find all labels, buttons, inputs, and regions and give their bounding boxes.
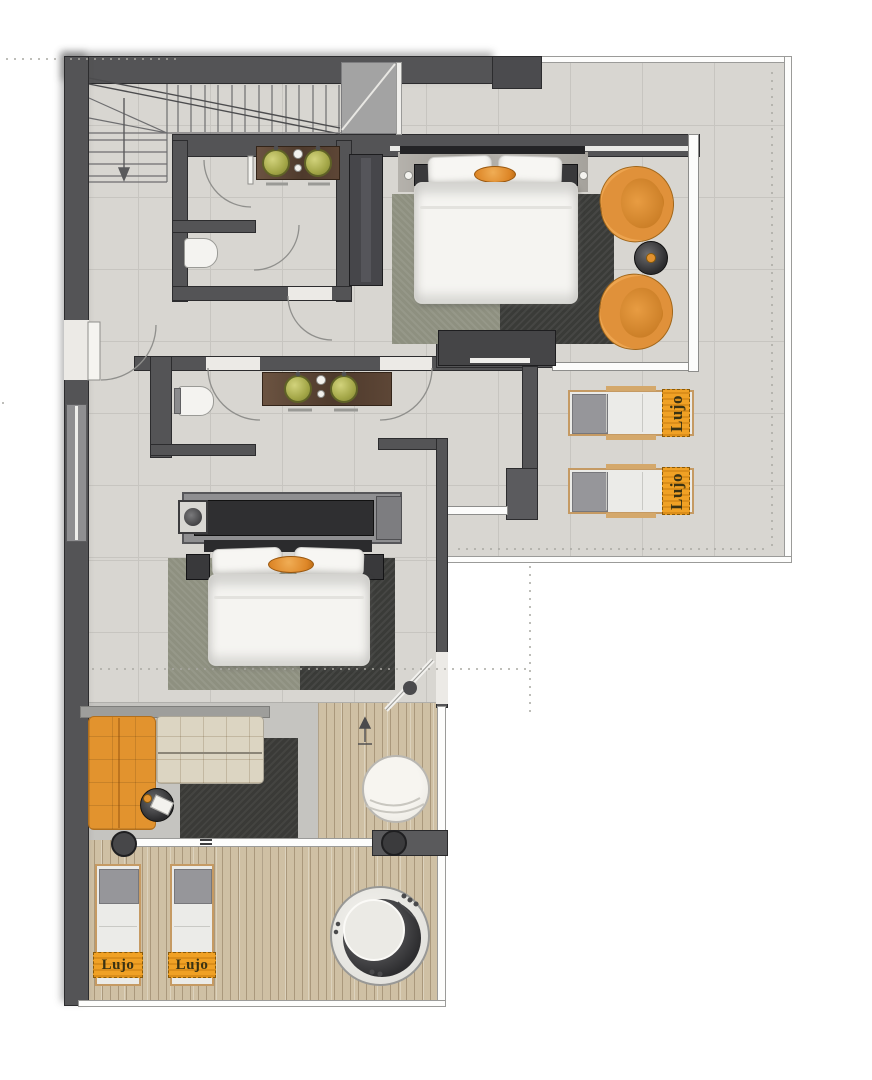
lamp-master-right <box>579 171 588 180</box>
terrace-parapet-bottom <box>446 556 792 563</box>
wall-bath1-wc-partition <box>172 220 256 233</box>
lounger-arm-bottom <box>606 435 656 440</box>
towel-label: Lujo <box>668 395 685 432</box>
towel-label: Lujo <box>102 958 135 973</box>
lounger-seam <box>174 926 210 927</box>
sun-lounger-terrace-2: Lujo <box>568 468 694 514</box>
duvet-fold-master <box>420 206 572 209</box>
lounger-seam <box>642 472 643 510</box>
lounger-seam <box>606 394 607 432</box>
sofa-beige-seam <box>158 752 262 754</box>
accessory-bath1 <box>294 164 302 172</box>
glass-master-east <box>688 134 699 372</box>
duvet-fold-bedroom2 <box>214 596 364 599</box>
toilet-bath2 <box>178 386 214 416</box>
terrace-parapet-right <box>784 56 792 563</box>
deck-rail-bottom <box>78 1000 446 1007</box>
nightstand-bedroom2-left <box>186 554 210 580</box>
terrace-parapet-top <box>540 56 792 63</box>
accent-pillow-bedroom2 <box>268 556 314 573</box>
lounger-seam <box>99 926 137 927</box>
vanity-bath2 <box>262 372 392 406</box>
sink-bath2-right <box>330 375 358 403</box>
sofa-chaise-seam <box>118 718 120 828</box>
towel-terrace-2: Lujo <box>662 467 690 515</box>
door-opening-bath2 <box>206 357 260 370</box>
accessory-bath2 <box>317 390 325 398</box>
towel-label: Lujo <box>668 473 685 510</box>
lounger-seam <box>606 472 607 510</box>
lounger-arm-bottom <box>606 513 656 518</box>
lounger-arm-top <box>606 464 656 469</box>
floor-transition-line <box>78 702 446 703</box>
lounger-headrest <box>99 869 139 904</box>
towel-label: Lujo <box>176 958 209 973</box>
pillar <box>506 468 538 520</box>
wall-terrace-side <box>522 366 538 470</box>
wardrobe-master-door-line <box>361 158 371 282</box>
tv-cabinet-detail <box>470 358 530 363</box>
lounger-seam <box>642 394 643 432</box>
accent-pillow-master <box>474 166 516 183</box>
door-opening-bath1 <box>288 287 332 300</box>
towel-deck-2: Lujo <box>168 952 216 978</box>
toilet-bath1 <box>184 238 218 268</box>
side-table-decor <box>646 253 656 263</box>
towel-deck-1: Lujo <box>93 952 143 978</box>
armchair-2-seat <box>617 285 665 341</box>
sofa-beige <box>156 716 264 784</box>
headboard-bar-master <box>400 146 585 154</box>
soap-dish-bath1 <box>293 149 303 159</box>
stair-divider <box>396 62 402 135</box>
sun-lounger-deck-1: Lujo <box>95 864 141 986</box>
sink-bath1-right <box>304 149 332 177</box>
glass-master-south <box>552 362 690 371</box>
planter-round <box>111 831 137 857</box>
wall-bath2-partition <box>150 444 256 456</box>
lamp-master-left <box>404 171 413 180</box>
wall-top-pillar <box>492 56 542 89</box>
door-opening-deck <box>436 652 448 704</box>
lounger-headrest <box>572 472 608 512</box>
towel-terrace-1: Lujo <box>662 389 690 437</box>
lounger-headrest <box>572 394 608 434</box>
bed-master-duvet <box>414 182 578 304</box>
lounger-headrest <box>174 869 212 904</box>
speaker-cone <box>184 508 202 526</box>
planter-box-pot <box>381 830 407 856</box>
door-opening-left-wall <box>64 320 89 380</box>
lounger-arm-top <box>606 386 656 391</box>
soap-dish-bath2 <box>316 375 326 385</box>
bed-bedroom2-duvet <box>208 574 370 666</box>
wall-bath2-left <box>150 356 172 458</box>
sink-bath2-left <box>284 375 312 403</box>
sun-lounger-deck-2: Lujo <box>170 864 214 986</box>
sink-bath1-left <box>262 149 290 177</box>
floor-plan: Lujo Lujo Lujo <box>0 0 872 1080</box>
armchair-1-seat <box>618 175 666 231</box>
stair-landing <box>341 62 397 134</box>
sun-lounger-terrace-1: Lujo <box>568 390 694 436</box>
glass-bedroom2-east <box>446 506 508 515</box>
window-left-glazing <box>75 406 78 540</box>
door-opening-bedroom2 <box>380 357 432 370</box>
headboard-cabinet-inner <box>194 500 374 536</box>
coffee-table-decor <box>143 794 152 803</box>
toilet-bath2-cistern <box>174 388 181 414</box>
wall-top <box>64 56 496 84</box>
headboard-cabinet-endcap <box>376 496 402 540</box>
papasan-chair <box>362 755 430 823</box>
hot-tub-cover <box>343 899 405 961</box>
